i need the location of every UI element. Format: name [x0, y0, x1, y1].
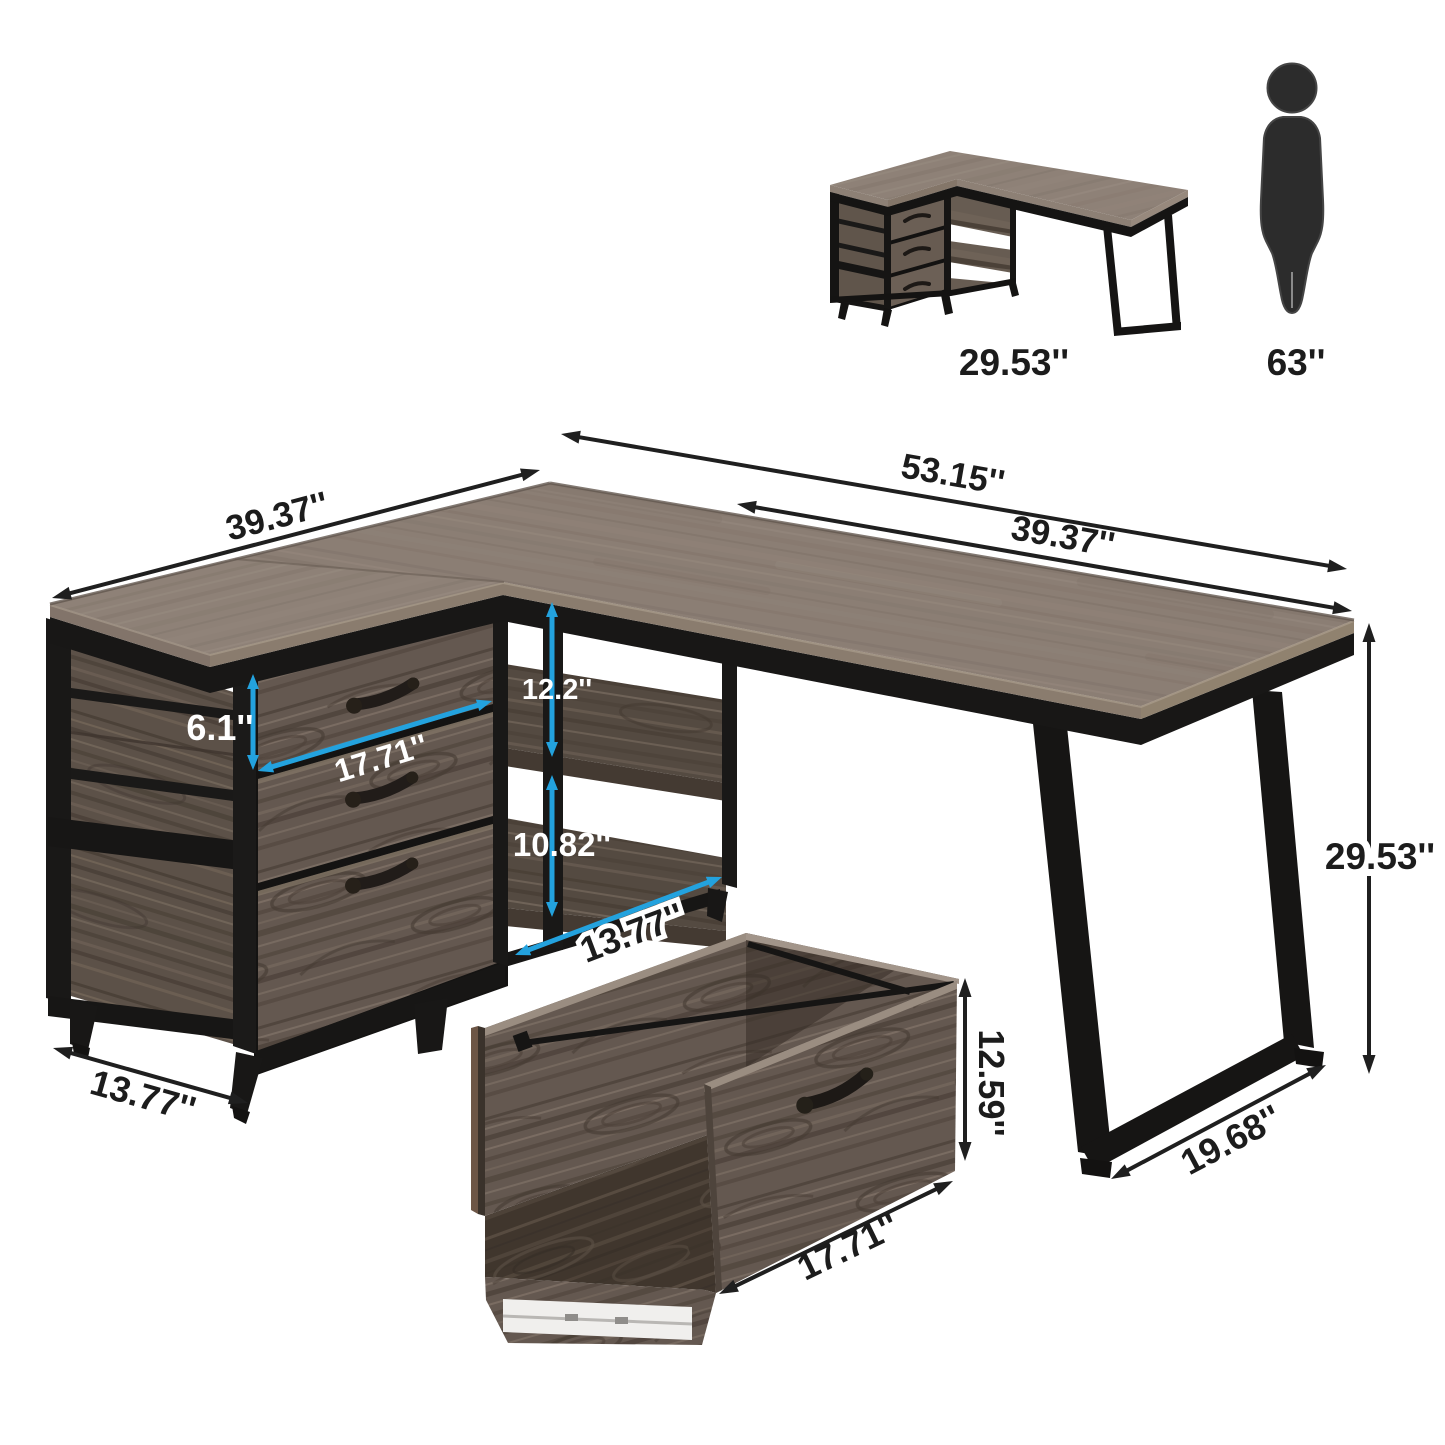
- svg-text:10.82'': 10.82'': [513, 826, 611, 863]
- svg-text:63'': 63'': [1267, 342, 1326, 383]
- svg-text:12.59'': 12.59'': [971, 1029, 1012, 1136]
- svg-text:12.2'': 12.2'': [522, 674, 592, 706]
- svg-text:6.1'': 6.1'': [186, 707, 253, 748]
- svg-text:29.53'': 29.53'': [959, 342, 1069, 383]
- svg-text:29.53'': 29.53'': [1325, 836, 1435, 877]
